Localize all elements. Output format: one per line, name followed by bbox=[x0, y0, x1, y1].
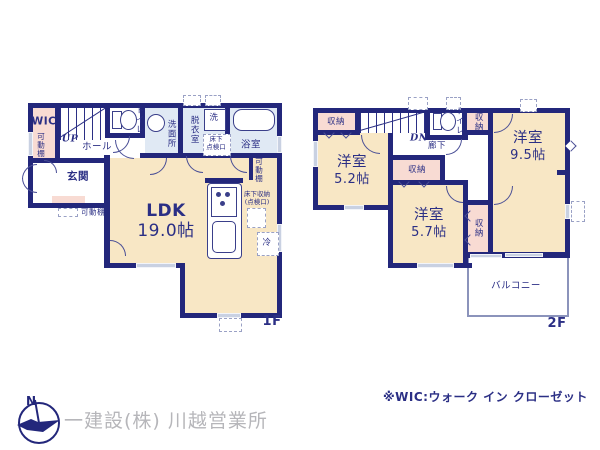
roof-vent bbox=[520, 99, 537, 112]
label-up: UP bbox=[62, 133, 78, 144]
label-yoshitsu-52: 洋室 bbox=[337, 154, 367, 171]
label-yoshitsu-57-size: 5.7帖 bbox=[411, 225, 447, 241]
company-name: 一建設(株) 川越営業所 bbox=[64, 406, 268, 433]
label-kadodana-bottom: 可動棚 bbox=[81, 208, 105, 217]
label-kadodana-right: 可動棚 bbox=[255, 157, 264, 183]
wall-segment bbox=[55, 103, 60, 160]
floor-storage-box bbox=[247, 208, 266, 228]
wall-segment bbox=[28, 158, 109, 163]
wall-segment bbox=[467, 200, 493, 205]
wall-segment bbox=[388, 155, 445, 160]
wic-note: ※WIC:ウォーク イン クローゼット bbox=[383, 388, 588, 405]
window bbox=[28, 132, 33, 156]
label-hall: ホール bbox=[82, 141, 112, 152]
window-ledge bbox=[219, 318, 242, 332]
wall-segment bbox=[313, 130, 360, 135]
wall-segment bbox=[440, 155, 445, 185]
balcony-door bbox=[470, 254, 502, 258]
washbasin bbox=[147, 114, 165, 132]
room-ldk-lower bbox=[185, 263, 277, 313]
compass-icon: N bbox=[12, 392, 66, 448]
compass-north-letter: N bbox=[26, 394, 36, 408]
window bbox=[565, 204, 570, 219]
window bbox=[344, 205, 364, 210]
door-arc bbox=[446, 139, 462, 155]
label-dn: DN bbox=[410, 132, 428, 143]
label-floor-hatch: 床下 点検口 bbox=[206, 136, 226, 152]
label-floor-storage: 床下収納 (点検口) bbox=[244, 191, 270, 207]
label-balcony: バルコニー bbox=[491, 280, 541, 291]
label-yoshitsu-95-size: 9.5帖 bbox=[510, 148, 546, 164]
stairs-2f bbox=[360, 113, 425, 133]
wall-segment bbox=[565, 108, 570, 258]
label-toilet-2f: トイレ bbox=[454, 107, 464, 136]
kitchen-stove bbox=[211, 187, 237, 217]
window bbox=[136, 263, 176, 268]
label-toilet-1f: トイレ bbox=[134, 106, 144, 135]
label-senmenjo: 洗面所 bbox=[166, 120, 176, 149]
door-arc bbox=[22, 164, 37, 179]
label-datsuishitsu: 脱衣室 bbox=[189, 116, 199, 145]
label-rouka: 廊下 bbox=[428, 141, 446, 151]
label-yokushitsu: 浴室 bbox=[241, 139, 261, 150]
door-arc bbox=[22, 178, 37, 193]
entrance-porch bbox=[58, 208, 78, 217]
label-yoshitsu-52-size: 5.2帖 bbox=[334, 172, 370, 188]
wall-segment bbox=[388, 133, 393, 268]
door-arc bbox=[115, 140, 134, 159]
balcony-door bbox=[505, 253, 543, 257]
kitchen-sink bbox=[212, 221, 236, 253]
window bbox=[277, 136, 282, 153]
floor-tag-2f: 2F bbox=[548, 316, 567, 332]
label-closet-tl: 収納 bbox=[327, 117, 345, 127]
window bbox=[417, 263, 454, 268]
label-genkan: 玄関 bbox=[67, 171, 89, 184]
label-ldk: LDK bbox=[146, 201, 186, 221]
floor-tag-1f: 1F bbox=[263, 314, 282, 330]
wall-segment bbox=[557, 170, 570, 175]
roof-vent bbox=[183, 95, 201, 106]
wall-segment bbox=[178, 103, 183, 158]
floorplan-canvas: WIC 可動棚 UP ホール トイレ 洗面所 脱衣室 洗 床下 点検口 浴室 可… bbox=[0, 0, 600, 450]
window-ledge bbox=[571, 201, 585, 222]
wall-segment bbox=[180, 263, 185, 318]
roof-vent bbox=[205, 95, 221, 106]
label-closet-right: 収納 bbox=[473, 219, 483, 238]
bathtub bbox=[233, 109, 275, 131]
window bbox=[313, 141, 318, 167]
wall-segment bbox=[249, 158, 253, 180]
wall-segment bbox=[355, 108, 360, 135]
label-yoshitsu-95: 洋室 bbox=[513, 130, 543, 147]
label-ldk-size: 19.0帖 bbox=[137, 221, 194, 241]
label-yoshitsu-57: 洋室 bbox=[414, 207, 444, 224]
label-wic: WIC bbox=[32, 116, 57, 129]
roof-vent bbox=[408, 97, 428, 110]
label-closet-mid: 収納 bbox=[408, 165, 426, 175]
label-fridge: 冷 bbox=[262, 238, 271, 248]
stove-burners bbox=[216, 192, 221, 197]
label-closet-tm: 収納 bbox=[473, 113, 483, 132]
wall-segment bbox=[28, 103, 282, 108]
label-washer: 洗 bbox=[209, 113, 218, 123]
label-kadodana-wic: 可動棚 bbox=[37, 132, 46, 158]
